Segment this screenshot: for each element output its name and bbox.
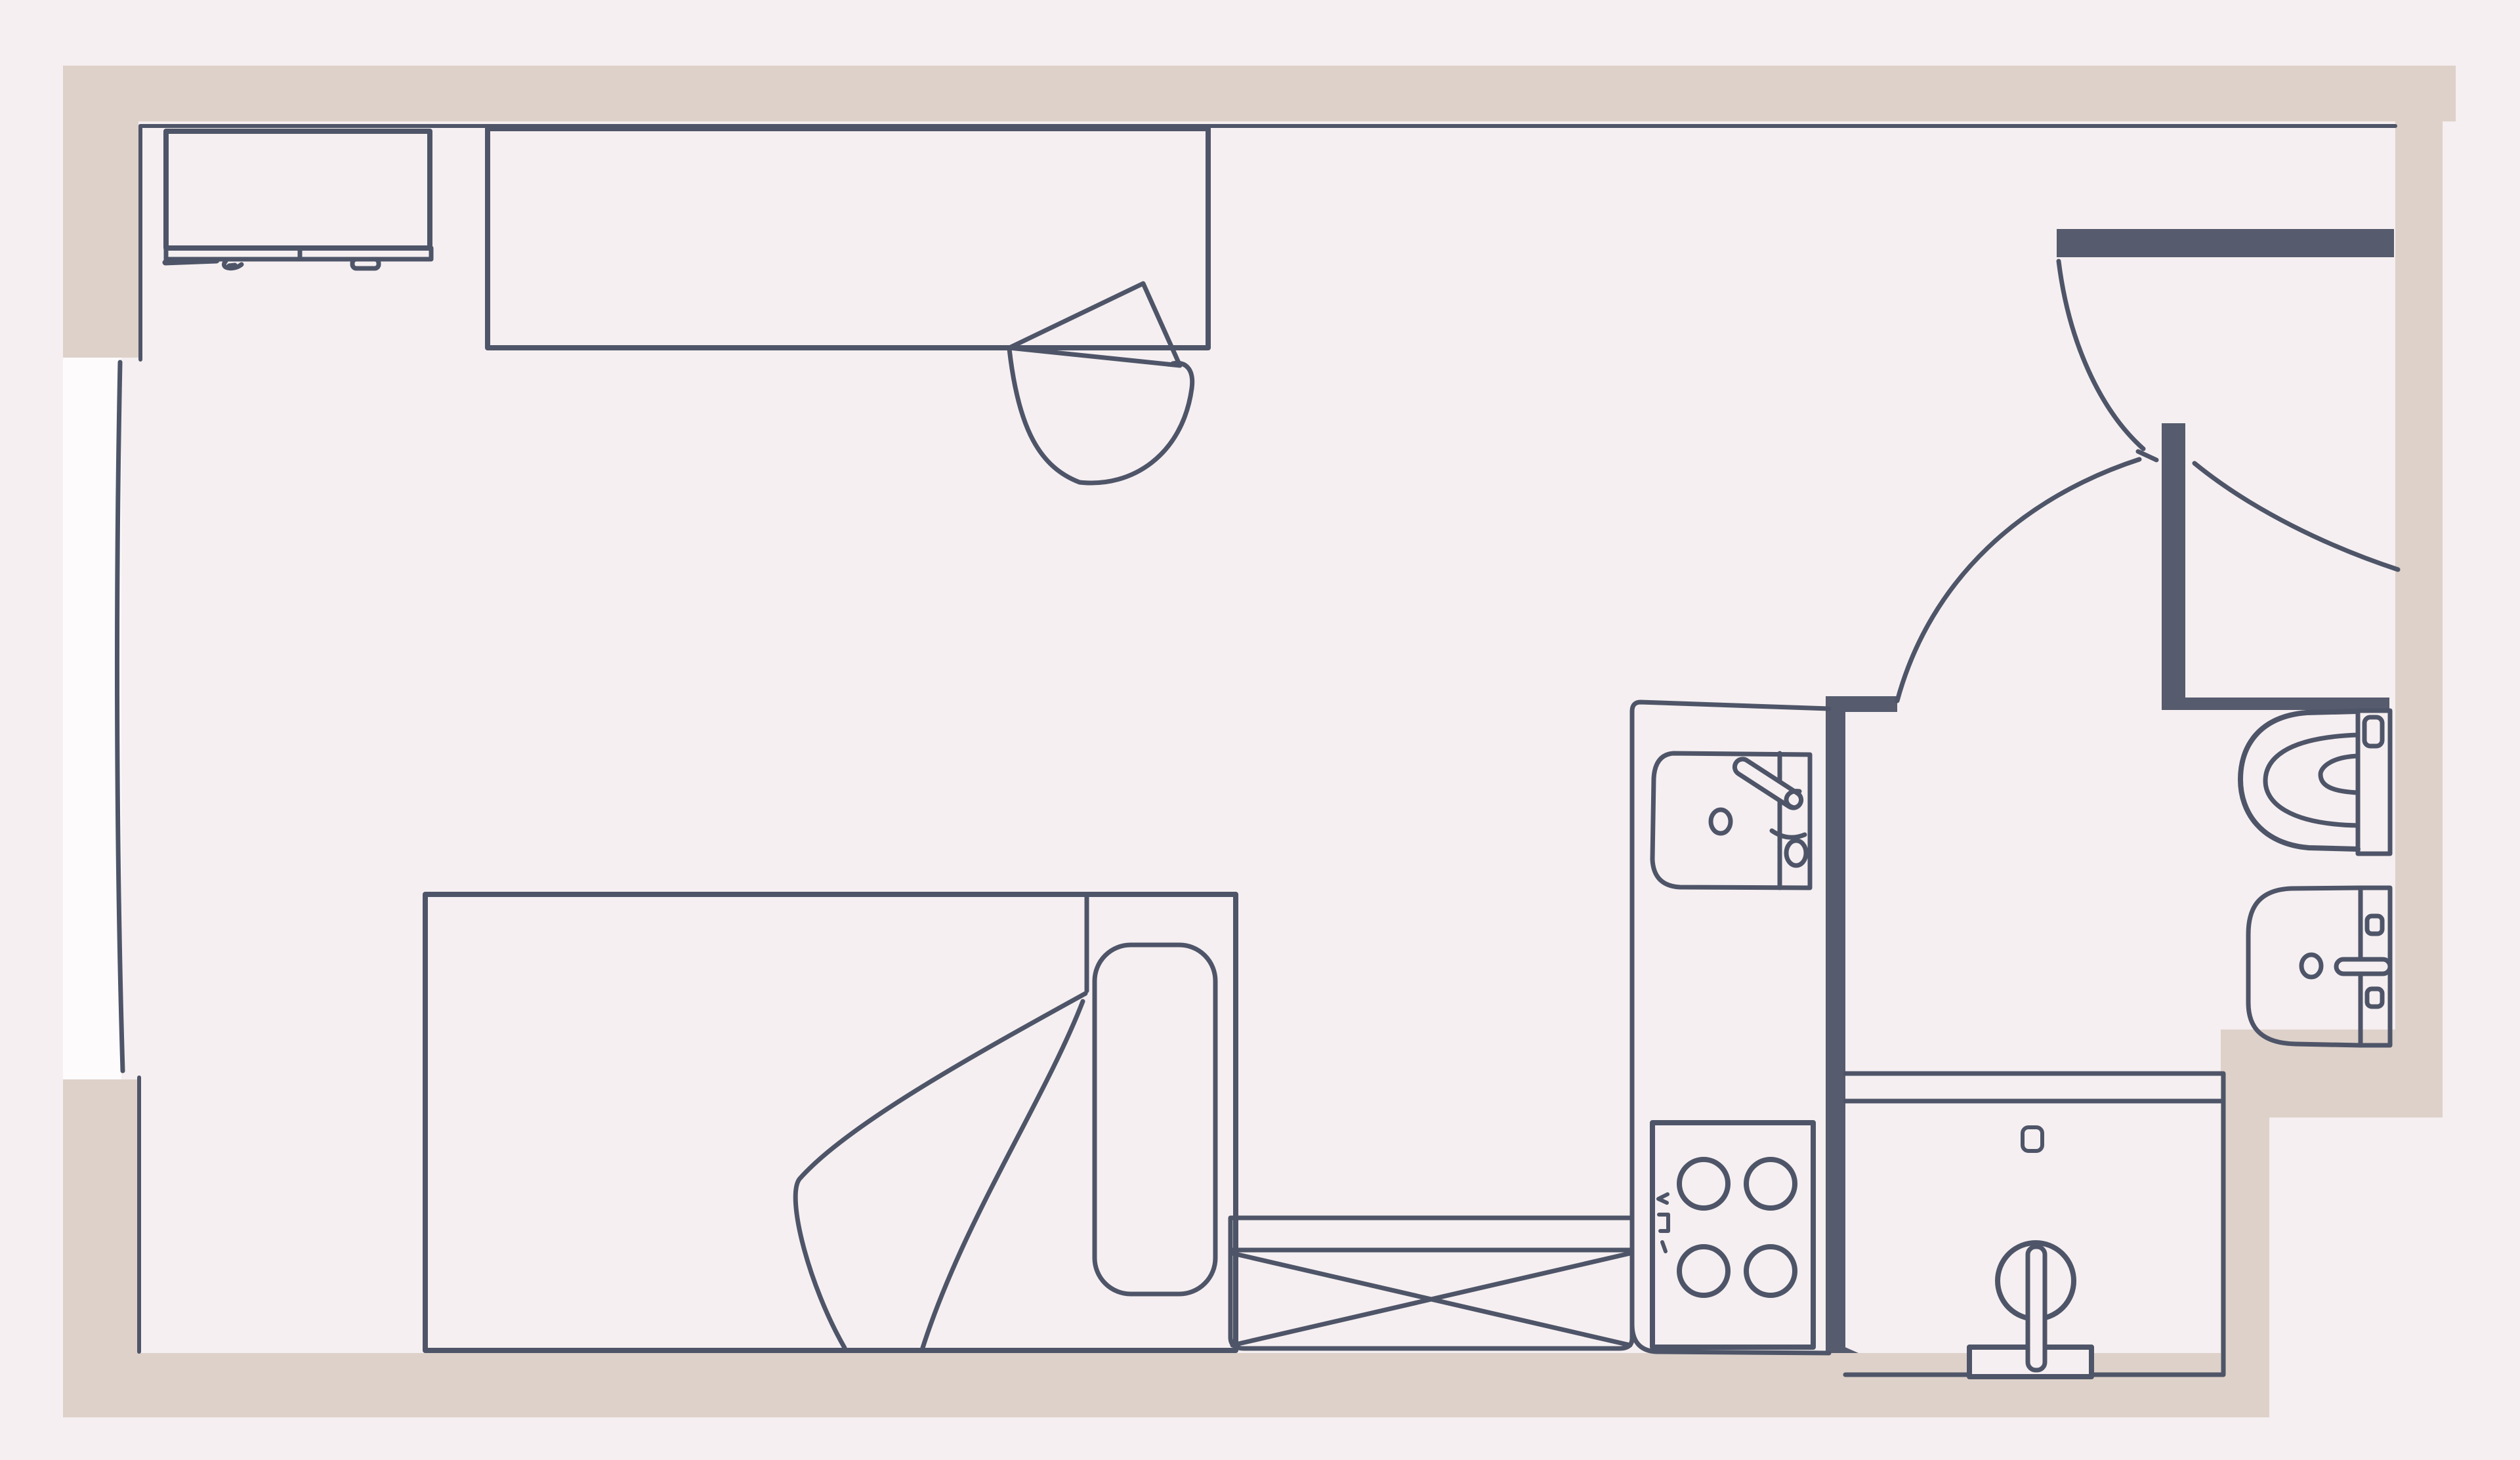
wall-left-lower xyxy=(63,1079,138,1362)
wall-left-upper xyxy=(63,121,138,358)
shower-handle xyxy=(2028,1247,2045,1370)
entry-door-leaf xyxy=(2057,229,2394,257)
window xyxy=(63,358,123,1079)
basin-faucet xyxy=(2336,959,2390,974)
bathroom-top-wall xyxy=(2162,698,2389,710)
wall-right xyxy=(2395,121,2443,1117)
tv-foot-left-line xyxy=(165,261,217,262)
floor-background xyxy=(0,0,2520,1460)
floor-plan xyxy=(0,0,2520,1460)
wall-bottom xyxy=(63,1353,2269,1417)
wall-top xyxy=(63,66,2456,121)
window-opening xyxy=(63,358,121,1079)
kitchen-partition-wall xyxy=(1826,696,1845,1353)
floor-plan-page xyxy=(0,0,2520,1460)
bathroom-partition-wall xyxy=(2162,423,2185,710)
